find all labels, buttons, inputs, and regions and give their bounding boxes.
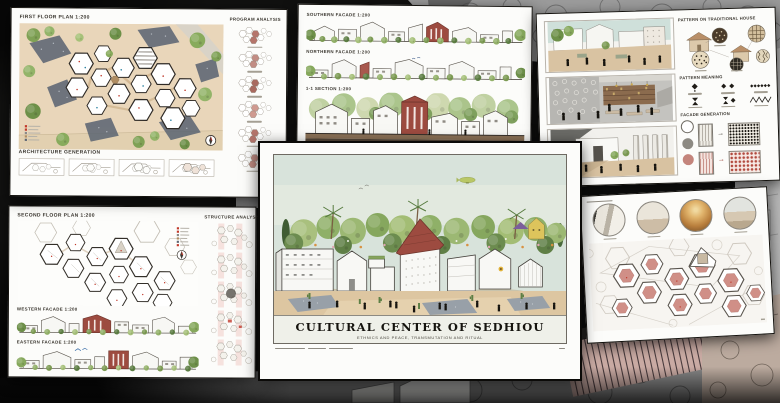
building-cluster [276,247,542,295]
library-interior-render [545,73,676,125]
generation-step-diagram [18,158,64,176]
structure-diagram [209,310,255,336]
architecture-generation-title: ARCHITECTURE GENERATION [19,149,223,157]
render-vignette [592,203,627,241]
facade-generation-title: FACADE GENERATION [680,110,776,118]
board-second-floor-plan: SECOND FLOOR PLAN 1:200 [8,205,257,378]
facade-panel [699,151,715,174]
second-floor-plan-title: SECOND FLOOR PLAN 1:200 [17,212,199,220]
site-plan-drawing [19,23,224,150]
material-circle [683,154,694,165]
axonometric-drawing [589,235,767,332]
render-vignette [723,196,758,234]
pattern-meaning-glyphs [680,81,777,108]
board-main-render: CULTURAL CENTER OF SEDHIOU ETHNICS AND P… [258,141,582,381]
structure-analysis-column: STRUCTURE ANALYSIS [204,213,261,373]
page-number [559,348,565,349]
program-diagram [233,25,277,48]
pattern-glyph [746,81,776,93]
pattern-glyph [713,95,743,107]
material-circle [682,138,693,149]
poster-collage: FIRST FLOOR PLAN 1:200 [0,0,780,403]
program-analysis-title: PROGRAM ANALYSIS [230,16,281,23]
northern-facade-drawing [306,55,525,84]
board-caption-row [273,348,567,349]
structure-diagram [209,252,255,278]
project-title: CULTURAL CENTER OF SEDHIOU [296,320,545,334]
pattern-meaning-title: PATTERN MEANING [679,73,775,81]
program-diagram [233,100,277,123]
pattern-glyph [680,83,710,95]
courtyard-render [544,18,675,74]
vignette-row [587,196,763,241]
credit-caption [275,348,353,349]
pattern-info-column: PATTERN ON TRADITIONAL HOUSE [678,15,778,176]
southern-facade-drawing [306,18,525,47]
second-floor-plan-drawing [17,220,199,306]
material-circle [681,120,694,133]
pattern-glyph [713,82,743,94]
north-compass-icon [206,135,216,145]
structure-diagram [209,339,255,365]
pattern-swatches-diagram [678,22,775,74]
arrow-icon: → [717,123,725,144]
structure-diagram [209,281,255,307]
generation-step-diagram [168,159,214,177]
render-vignette [679,198,714,236]
picture-frame: CULTURAL CENTER OF SEDHIOU ETHNICS AND P… [273,154,567,344]
generation-step-diagram [68,158,114,176]
board-first-floor-plan: FIRST FLOOR PLAN 1:200 [9,7,287,198]
project-subtitle: ETHNICS AND PEACE, TRANSMUTATION AND RIT… [357,335,483,340]
western-facade-drawing [17,313,199,338]
pattern-block-red [729,150,762,174]
render-vignette [635,201,670,239]
program-diagram [233,75,277,98]
hero-render [274,155,566,315]
pattern-glyph [680,96,710,108]
first-floor-plan-title: FIRST FLOOR PLAN 1:200 [20,14,224,22]
board-axonometric [579,186,774,344]
pattern-block-dark [728,122,761,146]
board-facades-section: SOUTHERN FACADE 1:200 [296,4,532,149]
pattern-glyph [746,94,776,106]
facade-generation-diagram: → → [681,118,778,176]
architecture-generation-steps [18,158,222,177]
program-diagram [233,50,277,73]
title-band: CULTURAL CENTER OF SEDHIOU ETHNICS AND P… [274,315,566,343]
bird-icon [75,348,87,351]
facade-panel [698,123,714,146]
eastern-facade-drawing [17,346,199,374]
generation-step-diagram [118,159,164,177]
structure-analysis-title: STRUCTURE ANALYSIS [204,213,260,220]
north-compass-icon [177,250,186,259]
arrow-icon: → [717,149,725,170]
structure-diagram [209,223,255,249]
section-drawing [305,92,525,144]
